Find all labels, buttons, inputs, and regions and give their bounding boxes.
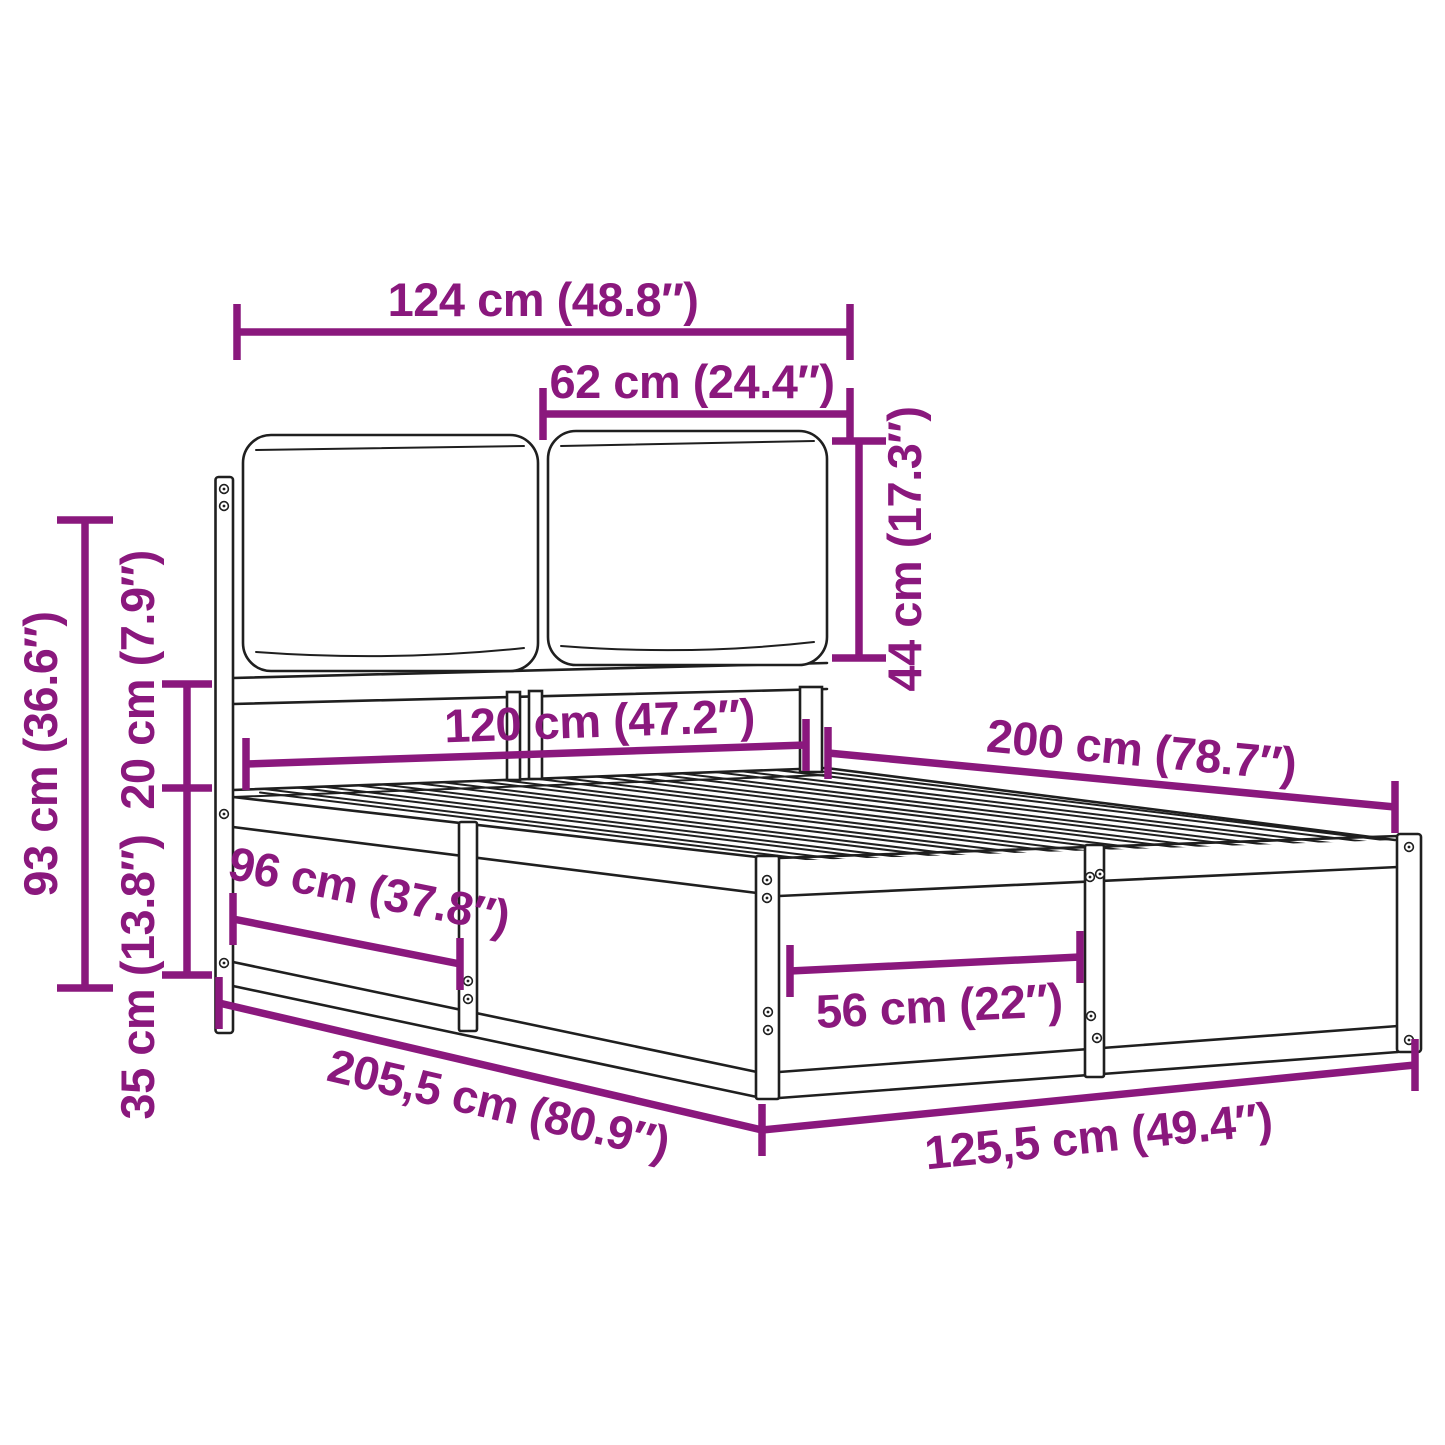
dimension-headboard-height: 93 cm (36.6″) (14, 520, 113, 988)
dimension-end-panel-section: 56 cm (22″) (790, 931, 1080, 1038)
label-inner-width: 120 cm (47.2″) (443, 689, 755, 753)
headboard-post-left (216, 477, 234, 1033)
dimension-inner-width: 120 cm (47.2″) (246, 689, 806, 790)
dimension-rail-gap: 20 cm (7.9″) (111, 550, 212, 809)
label-outer-width: 125,5 cm (49.4″) (922, 1092, 1274, 1179)
headboard-cushion-right (548, 431, 827, 665)
bed-frame-dimension-diagram: 124 cm (48.8″) 62 cm (24.4″) 44 cm (17.3… (0, 0, 1445, 1445)
headboard-cushion-left (243, 435, 538, 671)
foot-end-plank (1397, 834, 1421, 1052)
divider-leg-right (1085, 845, 1104, 1077)
dimension-outer-length: 205,5 cm (80.9″) (219, 977, 762, 1170)
dimension-base-height: 35 cm (13.8″) (111, 788, 212, 1120)
dimension-headboard-width: 124 cm (48.8″) (237, 273, 850, 360)
label-outer-length: 205,5 cm (80.9″) (323, 1038, 675, 1169)
label-cushion-width: 62 cm (24.4″) (549, 355, 834, 408)
label-cushion-height: 44 cm (17.3″) (878, 406, 931, 691)
side-panel-left (233, 797, 757, 1097)
corner-post (756, 856, 779, 1099)
label-rail-gap: 20 cm (7.9″) (111, 550, 164, 809)
dimension-cushion-height: 44 cm (17.3″) (832, 406, 931, 691)
label-end-panel-section: 56 cm (22″) (815, 973, 1064, 1038)
label-headboard-height: 93 cm (36.6″) (14, 611, 67, 896)
label-inner-length: 200 cm (78.7″) (984, 709, 1298, 791)
dimension-cushion-width: 62 cm (24.4″) (543, 355, 850, 440)
label-headboard-width: 124 cm (48.8″) (388, 273, 699, 326)
label-base-height: 35 cm (13.8″) (111, 834, 164, 1119)
